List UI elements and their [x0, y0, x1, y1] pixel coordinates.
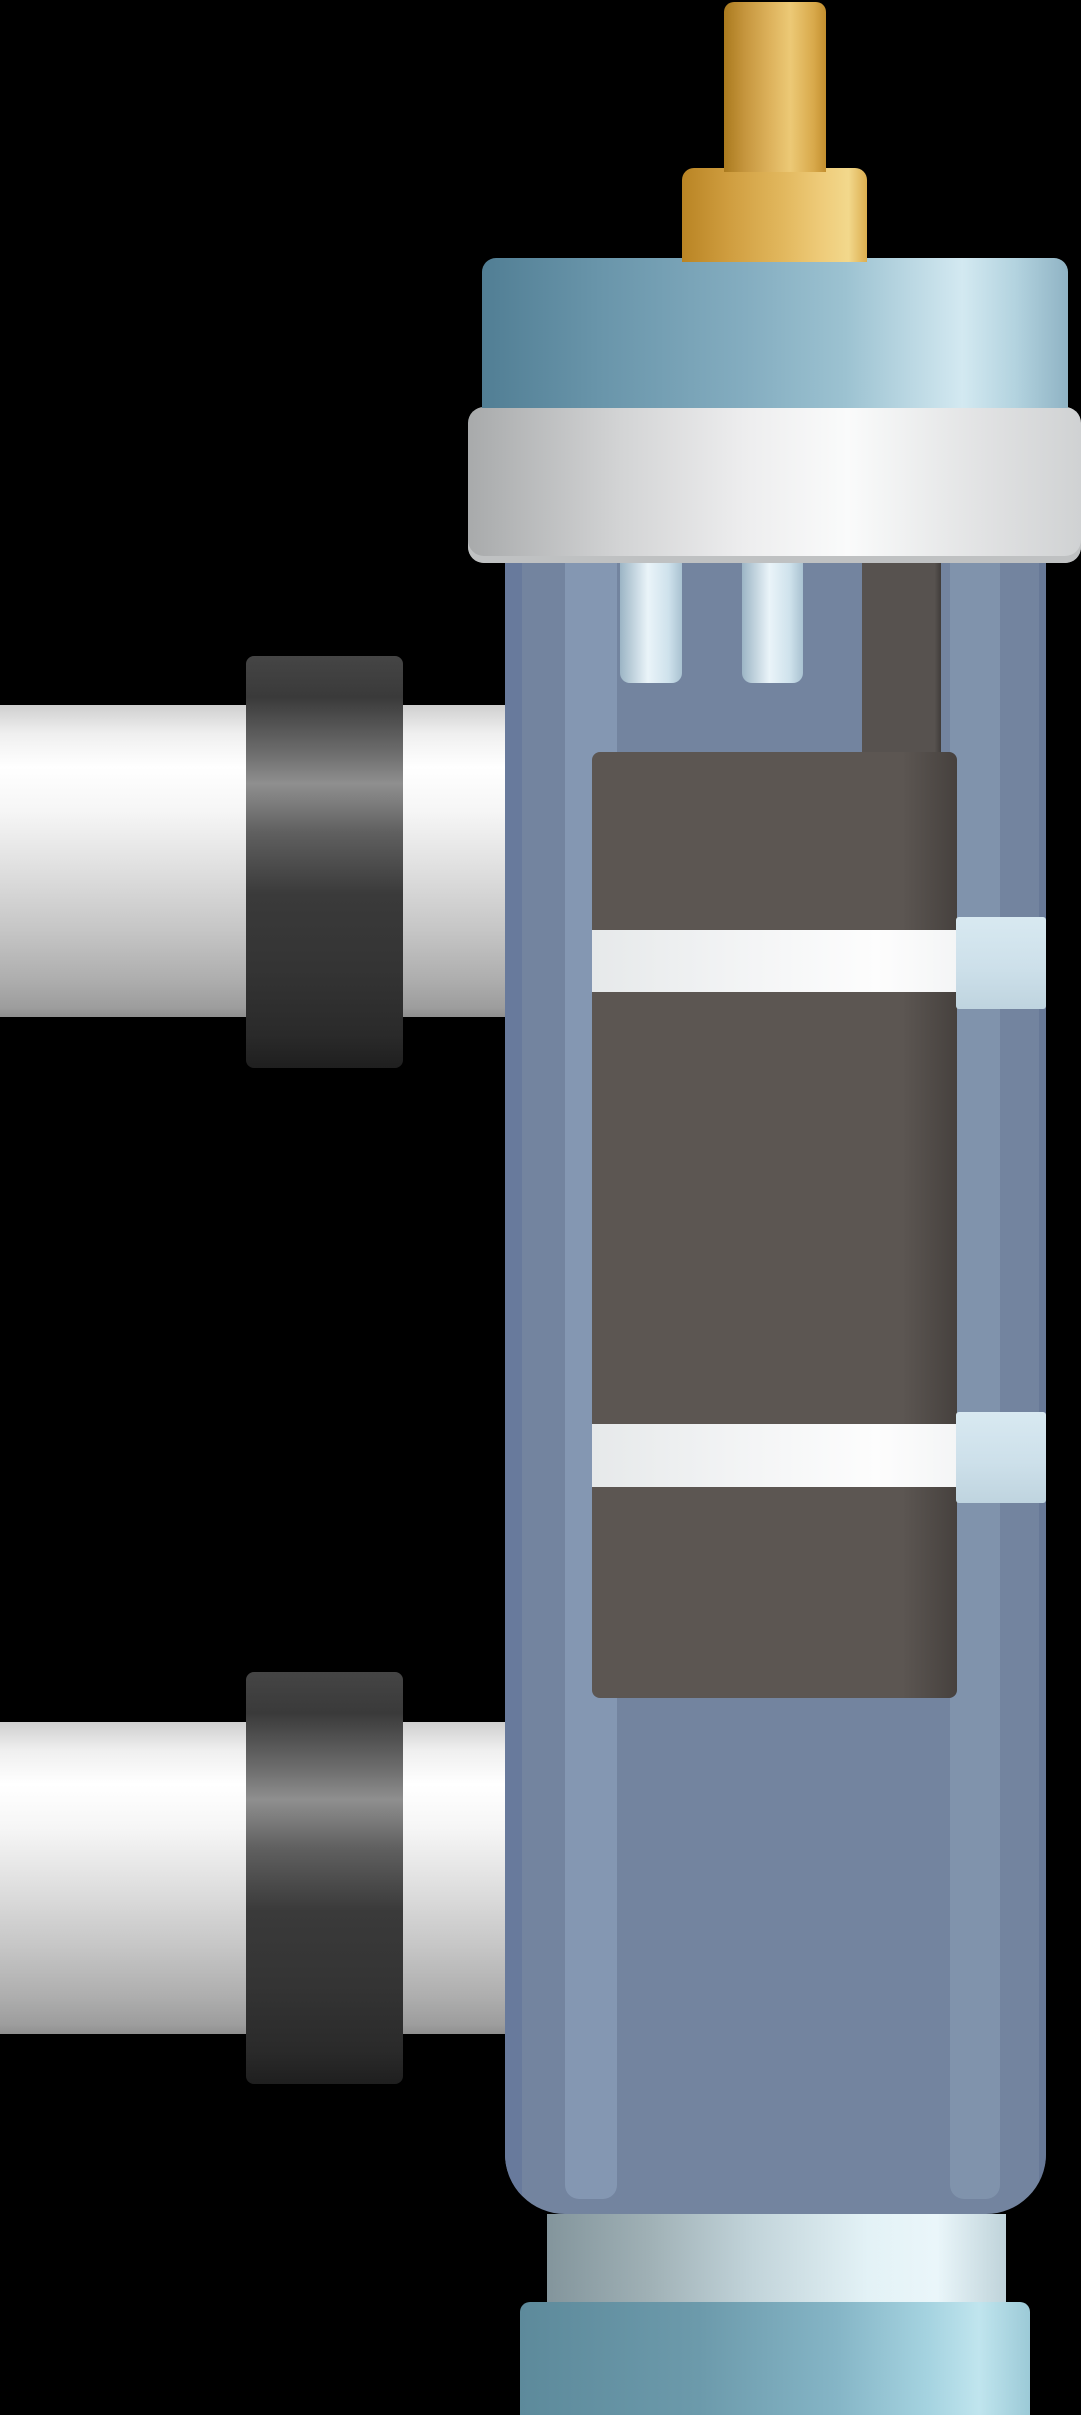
lower-pipe-right-segment	[403, 1722, 514, 2034]
clear-clip-upper	[956, 917, 1046, 1009]
front-panel	[592, 752, 957, 1698]
neck-ring	[547, 2214, 1006, 2303]
inner-dark-column	[862, 562, 941, 754]
lid-cap	[482, 258, 1068, 408]
upper-pipe-left-segment	[0, 705, 250, 1017]
flange-ring	[468, 407, 1081, 563]
upper-pipe-right-segment	[403, 705, 513, 1017]
upper-pipe-coupling	[246, 656, 403, 1068]
illustration-canvas: Flat vector illustration of a vertical c…	[0, 0, 1081, 2415]
brass-stem	[724, 2, 826, 172]
brass-stem-base	[682, 168, 867, 262]
base-cap	[520, 2302, 1030, 2415]
vessel-left-edge-shade	[505, 562, 522, 2214]
panel-white-band-upper	[592, 930, 957, 992]
inner-tube-right	[742, 562, 803, 683]
vessel-right-edge-shade	[1039, 562, 1046, 2214]
vessel-body	[505, 562, 1046, 2214]
panel-white-band-lower	[592, 1424, 957, 1487]
lower-pipe-coupling	[246, 1672, 403, 2084]
clear-clip-lower	[956, 1412, 1046, 1503]
lower-pipe-left-segment	[0, 1722, 250, 2034]
inner-tube-left	[620, 562, 682, 683]
vessel-right-light-strip	[950, 562, 1000, 2199]
